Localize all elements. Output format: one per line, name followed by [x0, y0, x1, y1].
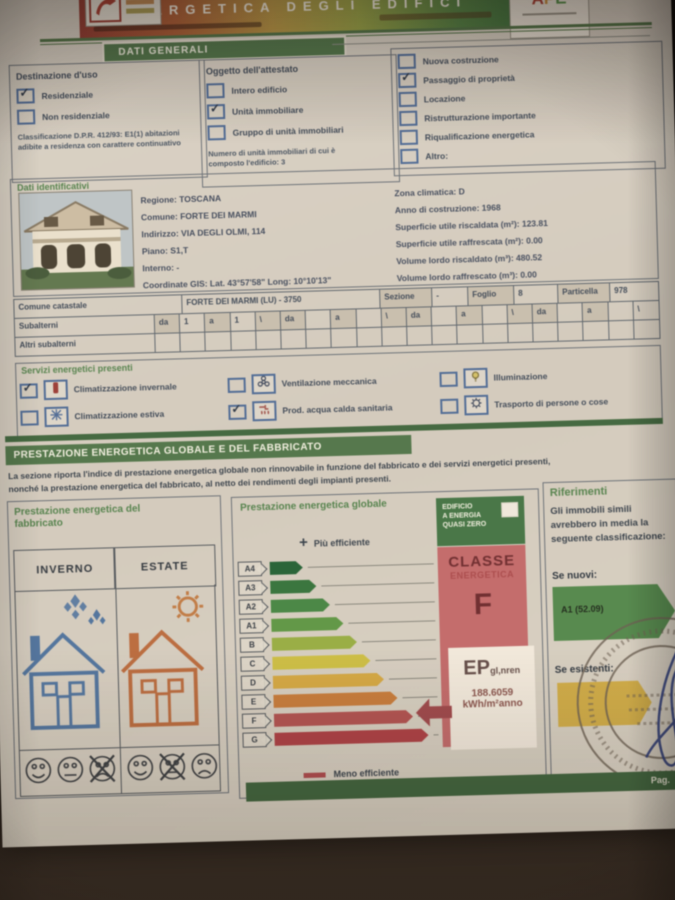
destinazione-title: Destinazione d'uso [16, 67, 198, 82]
option-row: Ristrutturazione importante [399, 104, 657, 126]
fabbricato-title: Prestazione energetica del fabbricato [14, 502, 185, 531]
class-letter: A1 [246, 621, 256, 630]
particella-value: 978 [610, 282, 658, 301]
sub-da-label: da [407, 307, 433, 326]
option-label: Non residenziale [42, 110, 110, 122]
option-row: Riqualificazione energetica [400, 123, 658, 145]
class-tag: E [241, 694, 265, 710]
checkbox-locazione[interactable] [399, 92, 417, 107]
option-label: Passaggio di proprietà [423, 72, 515, 85]
option-row: Gruppo di unità immobiliari [207, 120, 391, 140]
thermometer-icon [43, 379, 68, 400]
ape-logo: APE [509, 0, 590, 39]
class-leader [321, 582, 434, 586]
class-bar [274, 710, 413, 727]
option-row: Unità immobiliare [207, 99, 391, 119]
face-happy [125, 750, 156, 785]
se-nuovi-label: Se nuovi: [552, 570, 597, 582]
summer-house-icon [114, 585, 214, 744]
class-letter: F [251, 716, 256, 725]
globale-title: Prestazione energetica globale [240, 499, 387, 515]
servizio-label: Climatizzazione invernale [74, 381, 177, 394]
sub-slash: \ [633, 301, 659, 320]
altri-subalterni-label: Altri subalterni [15, 334, 155, 356]
sezione-value: - [432, 287, 468, 306]
nzeb-line: QUASI ZERO [443, 519, 525, 530]
servizio-label: Prod. acqua calda sanitaria [282, 402, 392, 415]
sub-da-label: da [281, 311, 307, 330]
face-sad [189, 748, 220, 783]
sezione-label: Sezione [380, 288, 432, 307]
col-header-inverno: INVERNO [13, 547, 116, 592]
checkbox-acqua-calda[interactable] [228, 404, 246, 419]
option-label: Altro: [425, 150, 448, 161]
class-letter: G [251, 735, 257, 744]
riferimenti-title: Riferimenti [550, 485, 608, 499]
elevator-gear-icon [464, 395, 489, 416]
class-tag: D [241, 675, 265, 691]
plus-symbol: + [299, 534, 308, 551]
checkbox-climatizzazione-invernale[interactable] [20, 383, 38, 398]
class-leader [362, 639, 436, 642]
class-tag: A1 [239, 618, 263, 634]
class-tag: F [242, 713, 266, 729]
class-letter: B [249, 640, 255, 649]
checkbox-illuminazione[interactable] [439, 371, 457, 386]
class-letter: A3 [245, 583, 255, 592]
oggetto-title: Oggetto dell'attestato [206, 61, 390, 76]
class-bar [271, 617, 343, 632]
option-row: Residenziale [16, 84, 198, 104]
class-bar [272, 654, 370, 670]
fabbricato-panel: Prestazione energetica del fabbricato IN… [7, 495, 229, 799]
fan-icon [251, 374, 276, 395]
hot-water-icon [252, 401, 277, 422]
foglio-value: 8 [514, 285, 558, 304]
numero-unita-note: Numero di unità immobiliari di cui è com… [208, 146, 339, 170]
class-leader [389, 677, 437, 679]
option-label: Intero edificio [231, 84, 287, 96]
servizio-label: Climatizzazione estiva [74, 409, 164, 422]
class-leader [335, 601, 435, 605]
option-label: Nuova costruzione [423, 54, 499, 66]
servizio-item: Ventilazione meccanica [227, 371, 376, 395]
checkbox-altro[interactable] [400, 149, 418, 164]
sub-a-value[interactable] [482, 305, 508, 324]
sub-a-value[interactable] [356, 309, 382, 328]
class-bar [271, 598, 330, 613]
face-happy [23, 753, 54, 788]
sub-da-value[interactable]: 1 [180, 314, 206, 333]
snowflake-icon [44, 406, 69, 427]
class-leader [402, 696, 437, 698]
checkbox-passaggio-proprieta[interactable] [398, 73, 416, 88]
destinazione-duso-box: Destinazione d'uso Residenziale Non resi… [9, 60, 208, 183]
face-sad [87, 751, 118, 786]
servizio-label: Illuminazione [493, 371, 547, 382]
sub-da-label: da [155, 314, 181, 333]
regione-toscana-logo [84, 0, 161, 27]
checkbox-riqualificazione[interactable] [400, 130, 418, 145]
winter-house-icon [15, 587, 115, 746]
option-label: Gruppo di unità immobiliari [232, 124, 343, 137]
sub-da-label: da [533, 304, 559, 323]
ape-letter-p: P [544, 0, 556, 8]
class-bar [272, 636, 357, 651]
class-tag: B [240, 637, 264, 653]
class-bar [274, 729, 428, 746]
checkbox-gruppo-unita[interactable] [207, 125, 225, 140]
class-letter: A2 [246, 602, 256, 611]
ape-letter-e: E [555, 0, 567, 8]
sub-a-value[interactable] [608, 302, 634, 321]
option-label: Ristrutturazione importante [424, 110, 536, 123]
checkbox-ventilazione-meccanica[interactable] [227, 377, 245, 392]
class-bar [273, 673, 384, 689]
class-tag: G [242, 732, 266, 748]
sub-a-label: a [583, 302, 609, 321]
nzeb-checkbox[interactable] [501, 502, 518, 517]
less-efficient-dash [304, 772, 326, 778]
class-tag: A4 [238, 561, 262, 577]
class-bar [270, 561, 303, 575]
sub-a-label: a [457, 306, 483, 325]
option-label: Locazione [424, 93, 466, 104]
inverno-cell [14, 587, 120, 751]
building-photo [18, 190, 135, 291]
checkbox-intero-edificio[interactable] [206, 83, 224, 98]
ep-subscript: gl,nren [490, 665, 520, 676]
sub-a-label: a [331, 309, 357, 328]
servizio-label: Trasporto di persone o cose [494, 396, 608, 409]
option-row: Non residenziale [17, 105, 199, 125]
sub-slash: \ [507, 304, 533, 323]
sub-slash: \ [255, 312, 281, 331]
globale-panel: Prestazione energetica globale +Più effi… [231, 488, 547, 798]
sub-da-value[interactable] [306, 310, 332, 329]
energetica-word: ENERGETICA [438, 569, 526, 581]
foglio-label: Foglio [468, 286, 514, 305]
classificazione-note: Classificazione D.P.R. 412/93: E1(1) abi… [18, 128, 200, 153]
identificativi-left-fields: Regione: TOSCANA Comune: FORTE DEI MARMI… [140, 190, 331, 297]
checkbox-unita-immobiliare[interactable] [207, 104, 225, 119]
class-leader [434, 734, 439, 735]
identificativi-right-fields: Zona climatica: D Anno di costruzione: 1… [394, 184, 549, 290]
checkbox-non-residenziale[interactable] [17, 109, 35, 124]
servizi-title: Servizi energetici presenti [21, 363, 133, 376]
sub-da-value[interactable] [432, 307, 458, 326]
checkbox-trasporto[interactable] [440, 398, 458, 413]
energy-class-letter: F [438, 587, 527, 623]
sub-da-value[interactable] [558, 303, 584, 322]
option-row: Nuova costruzione [398, 47, 656, 69]
ape-letter-a: A [531, 0, 544, 8]
servizio-item: Climatizzazione estiva [20, 404, 164, 428]
class-letter: E [251, 697, 257, 706]
sub-a-value[interactable]: 1 [230, 312, 256, 331]
class-bar [273, 691, 397, 707]
riferimenti-text: Gli immobili simili avrebbero in media l… [550, 502, 667, 547]
class-leader [375, 658, 436, 661]
option-row: Passaggio di proprietà [398, 66, 656, 88]
checkbox-nuova-costruzione[interactable] [398, 54, 416, 69]
energy-class-row-g: G [242, 725, 440, 750]
class-tag: A2 [239, 599, 263, 615]
checkbox-ristrutturazione[interactable] [399, 111, 417, 126]
page-label: Pag. [651, 775, 670, 786]
class-tag: A3 [238, 580, 262, 596]
banner-subtext-smudge [379, 12, 491, 21]
option-label: Riqualificazione energetica [425, 129, 535, 142]
face-neutral [55, 752, 86, 787]
lamp-icon [463, 368, 488, 389]
nzeb-box: EDIFICIO A ENERGIA QUASI ZERO [436, 496, 525, 546]
option-label: Residenziale [41, 89, 93, 100]
checkbox-residenziale[interactable] [16, 88, 34, 103]
class-tag: C [240, 656, 264, 672]
class-leader [308, 563, 434, 568]
option-row: Locazione [399, 85, 657, 107]
estate-cell [114, 584, 219, 748]
motivazione-box: Nuova costruzione Passaggio di proprietà… [390, 41, 665, 177]
class-leader [348, 620, 435, 623]
class-bar [270, 580, 316, 594]
col-header-estate: ESTATE [113, 544, 216, 589]
sub-slash: \ [381, 308, 407, 327]
more-efficient-label: +Più efficiente [299, 532, 370, 552]
sub-a-label: a [205, 313, 231, 332]
oggetto-attestato-box: Oggetto dell'attestato Intero edificio U… [199, 54, 400, 187]
ep-unit: kWh/m²anno [450, 698, 536, 711]
class-letter: C [249, 659, 255, 668]
ep-label: EP [463, 657, 490, 680]
signature [643, 636, 675, 766]
certificate-page: ENERGETICA DEGLI EDIFICI APE DATI GENERA… [0, 0, 675, 847]
class-letter: D [250, 678, 256, 687]
servizio-item: Illuminazione [439, 366, 547, 389]
option-row: Altro: [400, 142, 658, 164]
option-label: Unità immobiliare [232, 104, 304, 116]
particella-label: Particella [558, 283, 610, 302]
class-letter: A4 [245, 564, 255, 573]
checkbox-climatizzazione-estiva[interactable] [20, 410, 38, 425]
option-row: Intero edificio [206, 78, 390, 98]
less-efficient-label: Meno efficiente [333, 767, 399, 779]
face-neutral [157, 749, 188, 784]
ep-value-box: EPgl,nren 188.6059 kWh/m²anno [448, 646, 537, 750]
servizio-label: Ventilazione meccanica [282, 376, 377, 389]
